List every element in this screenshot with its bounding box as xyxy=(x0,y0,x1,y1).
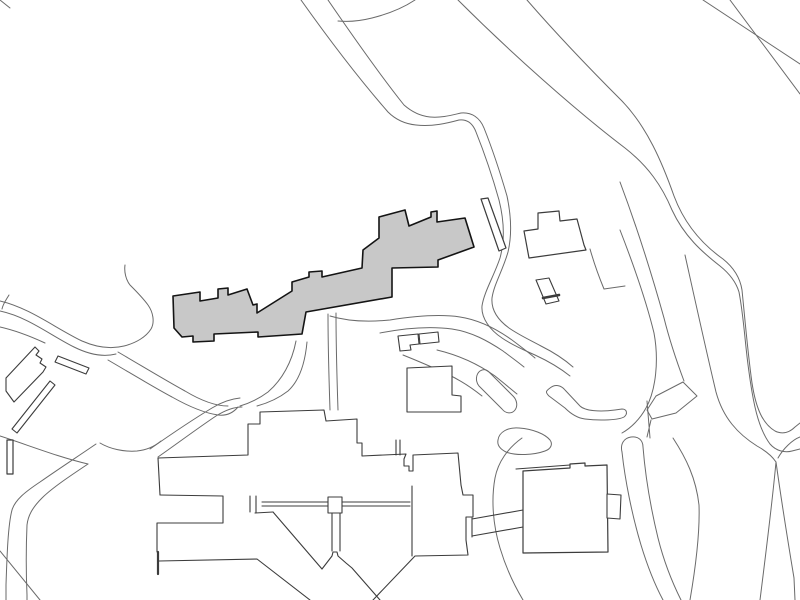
complex-diagonal-arm xyxy=(273,512,322,569)
path-merge-lane xyxy=(338,0,415,21)
path-building-down-west-2 xyxy=(257,342,307,406)
median-island-right-edge xyxy=(622,452,663,600)
west-small-slat xyxy=(55,356,89,374)
complex-north-rect xyxy=(407,366,461,412)
road-top-right-edge-1 xyxy=(703,0,800,64)
road-curve-c-edge xyxy=(620,182,684,381)
road-branch-inner-edge xyxy=(685,255,776,600)
road-descender-right xyxy=(776,462,795,600)
complex-upper-outline xyxy=(158,410,473,600)
path-building-down-mid-2 xyxy=(336,313,338,410)
house-building xyxy=(524,211,586,258)
path-to-complex-2 xyxy=(108,360,238,415)
complex-left-lower xyxy=(157,495,223,552)
path-around-square-building xyxy=(493,438,523,600)
main-road-edge-east xyxy=(527,0,800,433)
corner-tick-road xyxy=(0,0,10,8)
west-slat-vertical xyxy=(7,440,13,474)
yard-wall-line xyxy=(590,249,625,289)
junction-arrow-island xyxy=(647,382,697,419)
complex-walkway-bridge xyxy=(472,510,523,537)
road-top-right-edge-2 xyxy=(730,0,800,94)
complex-chevron-wing xyxy=(322,552,380,600)
path-from-top-outer xyxy=(301,0,570,376)
path-sw-elbow-2 xyxy=(26,464,88,600)
highlighted-building xyxy=(173,210,474,342)
road-curve-d-edge xyxy=(620,230,656,433)
small-building-with-band xyxy=(536,278,559,304)
road-center-descender xyxy=(673,438,699,600)
path-west-inner xyxy=(0,311,116,355)
site-plan-canvas xyxy=(0,0,800,600)
square-building xyxy=(523,463,608,553)
path-junction-arc xyxy=(100,441,161,451)
path-west-stub xyxy=(0,327,45,343)
slat-building xyxy=(481,198,506,251)
complex-stair-box xyxy=(328,497,342,513)
path-building-down-mid-1 xyxy=(328,314,330,410)
complex-corridor-verticals xyxy=(250,496,273,513)
small-rect-building xyxy=(419,332,439,344)
path-from-top-inner xyxy=(328,0,573,367)
small-l-building xyxy=(398,334,419,351)
junction-boomerang-island xyxy=(546,386,626,421)
square-building-annex xyxy=(607,494,621,519)
complex-bottom-edge xyxy=(159,559,310,600)
main-road-edge-west xyxy=(458,0,800,452)
road-crossing-from-right xyxy=(778,437,800,458)
path-building-down-west-1 xyxy=(240,341,296,406)
complex-north-connectors xyxy=(396,440,400,455)
walkway-capsule-island xyxy=(476,370,516,413)
site-plan xyxy=(0,0,800,600)
pond xyxy=(498,428,552,455)
path-junction-ne-2 xyxy=(158,407,242,457)
path-west-loop xyxy=(0,265,153,348)
complex-link-verticals xyxy=(332,513,340,551)
